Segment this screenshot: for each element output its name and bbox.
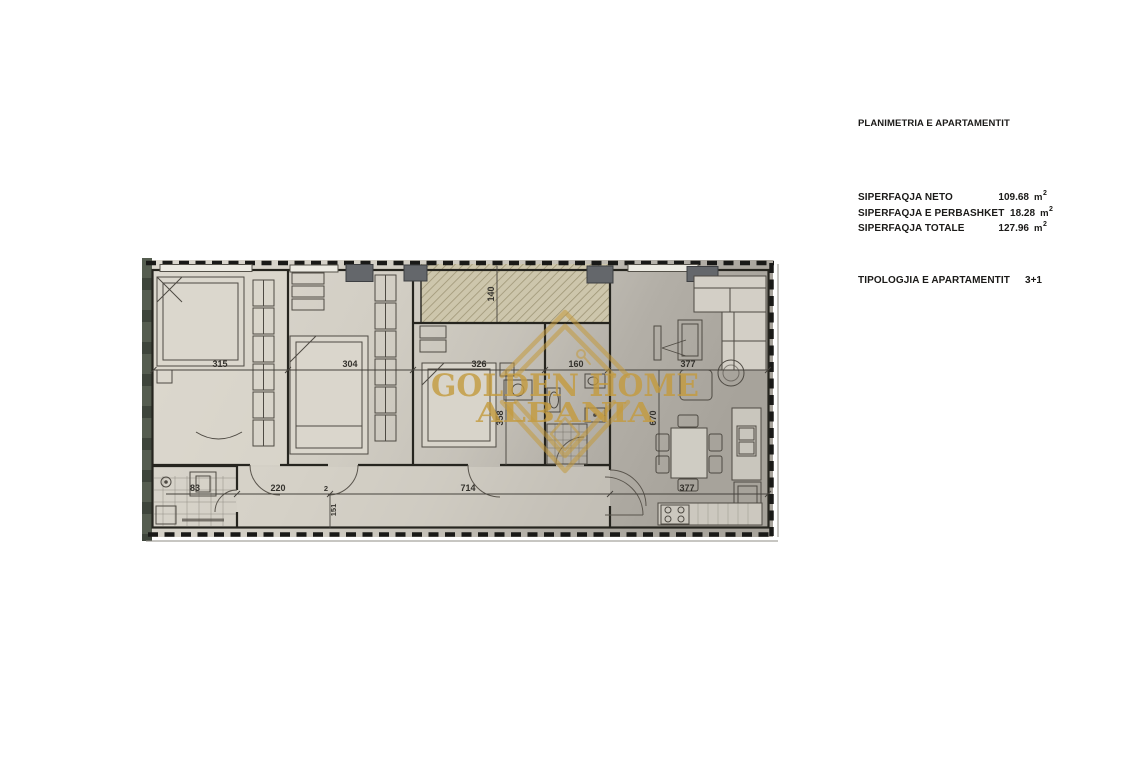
area-label: SIPERFAQJA E PERBASHKET	[858, 208, 1004, 219]
dim-bedroom1-width: 315	[212, 359, 227, 369]
area-unit: m2	[1029, 191, 1054, 203]
dim-bath2-width: 83	[190, 483, 200, 493]
dim-balcony-depth: 140	[486, 286, 496, 301]
typology-label: TIPOLOGJIA E APARTAMENTIT	[858, 275, 1025, 286]
area-value: 109.68	[985, 192, 1029, 203]
dim-hall-width: 220	[270, 483, 285, 493]
floor-plan-svg: 315 304 326 160 377 83 220 714 377 2 140…	[138, 250, 780, 550]
area-row-neto: SIPERFAQJA NETO 109.68 m2	[858, 191, 1054, 207]
area-value: 18.28	[1004, 208, 1035, 219]
page: { "panel": { "title": "PLANIMETRIA E APA…	[0, 0, 1128, 783]
typology-value: 3+1	[1025, 275, 1042, 286]
area-value: 127.96	[985, 223, 1029, 234]
dim-corridor-width: 714	[460, 483, 475, 493]
floor-plan: 315 304 326 160 377 83 220 714 377 2 140…	[138, 250, 780, 550]
area-label: SIPERFAQJA NETO	[858, 192, 985, 203]
area-table: SIPERFAQJA NETO 109.68 m2 SIPERFAQJA E P…	[858, 191, 1054, 238]
area-unit: m2	[1035, 207, 1054, 219]
typology-row: TIPOLOGJIA E APARTAMENTIT 3+1	[858, 275, 1054, 286]
area-label: SIPERFAQJA TOTALE	[858, 223, 985, 234]
area-unit: m2	[1029, 222, 1054, 234]
area-row-totale: SIPERFAQJA TOTALE 127.96 m2	[858, 222, 1054, 238]
dim-kitchen-width: 377	[679, 483, 694, 493]
dim-door-width: 151	[329, 504, 338, 517]
page-title: PLANIMETRIA E APARTAMENTIT	[858, 118, 1010, 129]
watermark-line2: ALBANIA	[475, 398, 656, 429]
area-row-perbashket: SIPERFAQJA E PERBASHKET 18.28 m2	[858, 207, 1054, 223]
balcony-hatch	[421, 264, 610, 323]
dim-wall-tick: 2	[324, 484, 328, 493]
dim-bedroom2-width: 304	[342, 359, 357, 369]
